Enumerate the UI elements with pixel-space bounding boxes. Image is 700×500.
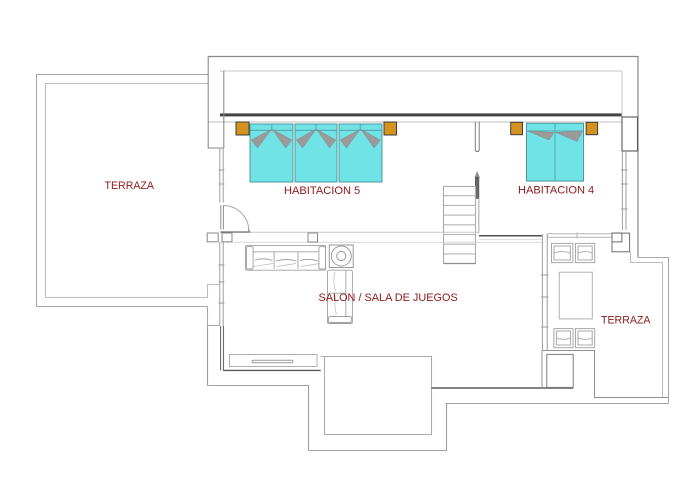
svg-text:SALON / SALA DE JUEGOS: SALON / SALA DE JUEGOS (319, 292, 458, 304)
svg-text:TERRAZA: TERRAZA (601, 314, 651, 326)
svg-text:HABITACION 5: HABITACION 5 (284, 185, 360, 197)
svg-text:HABITACION 4: HABITACION 4 (518, 185, 594, 197)
svg-text:TERRAZA: TERRAZA (105, 180, 155, 192)
